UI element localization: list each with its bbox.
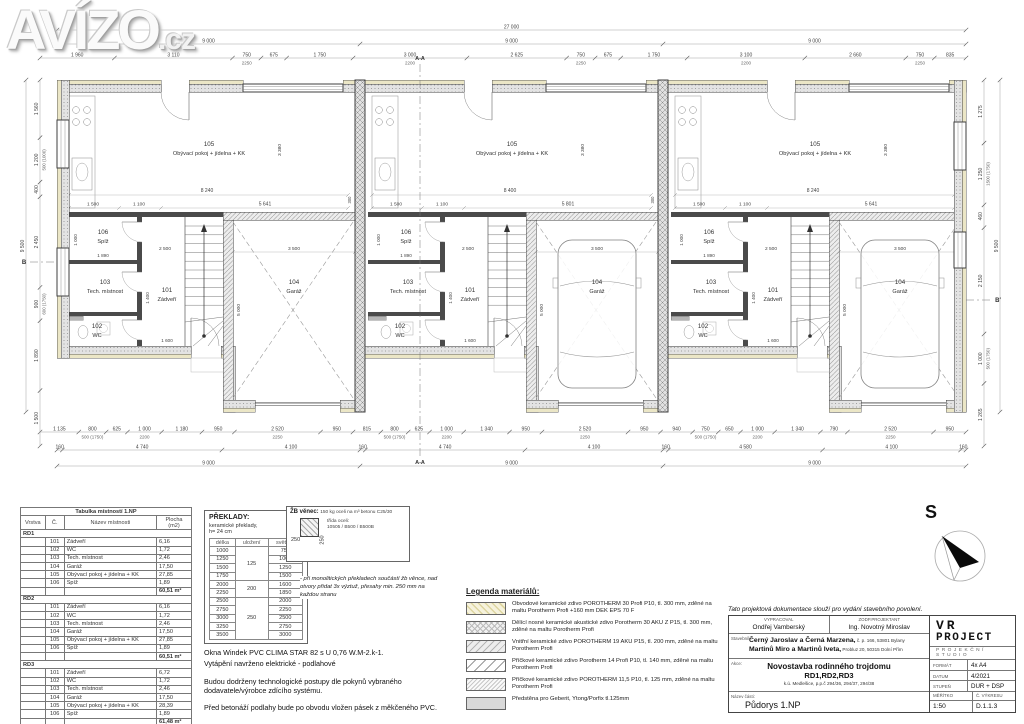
notes-block: Okna Windek PVC CLIMA STAR 82 s U 0,76 W… <box>204 648 466 721</box>
svg-text:500 (1750): 500 (1750) <box>986 348 991 370</box>
svg-text:900: 900 <box>34 300 40 309</box>
scale-number-row: MĚŘÍTKO 1:50 Č. VÝKRESU D.1.1.3 <box>930 692 1015 712</box>
table-row: 101Zádveří6,72 <box>21 669 192 677</box>
svg-text:2250: 2250 <box>580 434 591 439</box>
svg-text:106: 106 <box>704 229 715 236</box>
zodp-projektant-cell: ZODP.PROJEKTANT Ing. Novotný Miroslav <box>830 616 930 633</box>
svg-text:101: 101 <box>768 287 779 294</box>
svg-text:1 135: 1 135 <box>53 426 66 432</box>
svg-text:3 380: 3 380 <box>883 144 889 156</box>
svg-text:790: 790 <box>830 426 839 432</box>
stupen-label: STUPEŇ <box>930 681 968 691</box>
svg-text:9 500: 9 500 <box>20 240 26 253</box>
svg-text:1 600: 1 600 <box>464 338 476 343</box>
svg-text:9 000: 9 000 <box>808 38 821 44</box>
datum-row: DATUM 4/2021 <box>930 671 1015 682</box>
legend-text: Předstěna pro Geberit, Ytong/Porfix tl.1… <box>512 696 727 703</box>
legend-text: Dělící nosné keramické akustické zdivo P… <box>512 620 727 634</box>
cislo-value: D.1.1.3 <box>973 701 1015 710</box>
svg-text:S: S <box>925 502 937 522</box>
title-block: Tato projektová dokumentace slouží pro v… <box>728 606 1016 713</box>
svg-text:1 265: 1 265 <box>978 408 984 421</box>
venec-dim-a: 250 <box>291 537 300 543</box>
svg-text:105: 105 <box>507 141 518 148</box>
table-row: RD1 <box>21 530 192 538</box>
project-title-2: RD1,RD2,RD3 <box>729 671 929 680</box>
table-row: 103Tech. místnost2,46 <box>21 685 192 693</box>
logo-line-1: VR <box>936 619 1015 632</box>
svg-text:950: 950 <box>333 426 342 432</box>
venec-dim-b: 250 <box>320 535 326 544</box>
svg-text:9 000: 9 000 <box>505 460 518 466</box>
floor-plan-unit-rd1: 101Zádveří102WC103Tech. místnost104Garáž… <box>57 80 360 412</box>
logo-line-2: PROJECT <box>936 632 1015 644</box>
akce-label: Akce: <box>731 661 742 666</box>
svg-text:8 400: 8 400 <box>504 188 517 194</box>
svg-text:2 660: 2 660 <box>849 52 862 58</box>
svg-text:2250: 2250 <box>576 60 587 65</box>
svg-text:1 250: 1 250 <box>978 167 984 180</box>
svg-text:2 625: 2 625 <box>511 52 524 58</box>
svg-text:300: 300 <box>347 196 352 204</box>
svg-text:5 641: 5 641 <box>259 202 272 208</box>
svg-text:300: 300 <box>650 196 655 204</box>
floor-plan-unit-rd2: 101Zádveří102WC103Tech. místnost104Garáž… <box>360 80 663 412</box>
svg-text:5 641: 5 641 <box>865 202 878 208</box>
svg-text:1 100: 1 100 <box>739 202 751 208</box>
venec-note: - při monolitických překladech součástí … <box>300 576 440 599</box>
table-row: 61,48 m² <box>21 718 192 724</box>
svg-text:Obývací pokoj + jídelna + KK: Obývací pokoj + jídelna + KK <box>173 151 245 157</box>
svg-text:4 740: 4 740 <box>439 444 452 450</box>
svg-text:950: 950 <box>522 426 531 432</box>
note-pvc: Před betonáží podlahy bude po obvodu vlo… <box>204 703 466 712</box>
svg-text:835: 835 <box>946 52 955 58</box>
legend-swatch-porotherm-14-profi <box>466 659 506 672</box>
svg-text:101: 101 <box>465 287 476 294</box>
svg-text:950: 950 <box>214 426 223 432</box>
svg-text:650: 650 <box>725 426 734 432</box>
meritko-value: 1:50 <box>930 701 972 710</box>
svg-text:Obývací pokoj + jídelna + KK: Obývací pokoj + jídelna + KK <box>476 151 548 157</box>
table-row: 102WC1,72 <box>21 612 192 620</box>
table-row: 20002001600 <box>210 580 303 588</box>
svg-text:3 100: 3 100 <box>740 52 753 58</box>
svg-text:5 000: 5 000 <box>842 304 848 316</box>
svg-text:Spíž: Spíž <box>97 239 108 245</box>
svg-text:1 400: 1 400 <box>448 292 453 304</box>
svg-text:WC: WC <box>92 333 101 339</box>
zodp-name: Ing. Novotný Miroslav <box>830 624 930 631</box>
svg-text:1 275: 1 275 <box>978 105 984 118</box>
svg-text:9 000: 9 000 <box>505 38 518 44</box>
legend-item: Vnitřní keramické zdivo POROTHERM 19 AKU… <box>466 639 736 653</box>
table-row: 103Tech. místnost2,46 <box>21 554 192 562</box>
svg-text:9 000: 9 000 <box>808 460 821 466</box>
stavebnik-2-addr: Probluz 20, 50315 Dolní Přím <box>841 647 903 652</box>
note-technology: Budou dodrženy technologické postupy dle… <box>204 677 466 696</box>
svg-text:2250: 2250 <box>272 434 283 439</box>
svg-text:160: 160 <box>56 444 65 450</box>
svg-text:3 500: 3 500 <box>894 246 906 252</box>
svg-text:625: 625 <box>415 426 424 432</box>
legend-items: Obvodové keramické zdivo POROTHERM 30 Pr… <box>466 601 736 710</box>
stavebnik-cell: Stavebník: Černý Jaroslav a Černá Marzen… <box>729 634 929 659</box>
material-legend-block: Legenda materiálů: Obvodové keramické zd… <box>466 587 736 714</box>
svg-text:815: 815 <box>363 426 372 432</box>
svg-text:1 890: 1 890 <box>97 253 109 258</box>
svg-text:4 100: 4 100 <box>885 444 898 450</box>
stavebnik-1-addr: č. p. 166, 53801 Bylany <box>856 638 905 643</box>
legend-text: Vnitřní keramické zdivo POROTHERM 19 AKU… <box>512 639 727 653</box>
title-block-disclaimer: Tato projektová dokumentace slouží pro v… <box>728 606 1016 613</box>
legend-item: Obvodové keramické zdivo POROTHERM 30 Pr… <box>466 601 736 615</box>
venec-title: ŽB věnec: <box>290 509 319 515</box>
note-heating: Vytápění navrženo elektrické - podlahové <box>204 659 466 668</box>
note-windows: Okna Windek PVC CLIMA STAR 82 s U 0,76 W… <box>204 648 466 657</box>
table-row: 101Zádveří6,16 <box>21 538 192 546</box>
room-table-block: Tabulka místností 1.NPVrstvaČ.Název míst… <box>20 507 192 724</box>
svg-text:1 600: 1 600 <box>161 338 173 343</box>
floor-plan-unit-rd3: 101Zádveří102WC103Tech. místnost104Garáž… <box>663 80 966 412</box>
svg-text:1 600: 1 600 <box>767 338 779 343</box>
vypracoval-name: Ondřej Vamberský <box>729 624 829 631</box>
svg-text:1 000: 1 000 <box>978 352 984 365</box>
svg-text:8 240: 8 240 <box>201 188 214 194</box>
svg-text:105: 105 <box>810 141 821 148</box>
table-row: 103Tech. místnost2,46 <box>21 620 192 628</box>
svg-text:Spíž: Spíž <box>703 239 714 245</box>
svg-text:104: 104 <box>289 279 300 286</box>
svg-text:A-A: A-A <box>415 460 425 466</box>
akce-cell: Akce: Novostavba rodinného trojdomu RD1,… <box>729 659 929 692</box>
svg-text:750: 750 <box>701 426 710 432</box>
svg-text:2 520: 2 520 <box>271 426 284 432</box>
svg-text:1 400: 1 400 <box>145 292 150 304</box>
legend-item: Dělící nosné keramické akustické zdivo P… <box>466 620 736 634</box>
svg-text:104: 104 <box>592 279 603 286</box>
svg-text:1 890: 1 890 <box>703 253 715 258</box>
svg-text:4 100: 4 100 <box>285 444 298 450</box>
svg-text:B′: B′ <box>995 298 1001 304</box>
svg-text:103: 103 <box>100 279 111 286</box>
legend-item: Příčkové keramické zdivo POROTHERM 11,5 … <box>466 677 736 691</box>
svg-text:103: 103 <box>403 279 414 286</box>
svg-text:500 (1750): 500 (1750) <box>695 434 717 439</box>
svg-text:9 500: 9 500 <box>994 240 1000 253</box>
table-row: 60,51 m² <box>21 587 192 595</box>
format-row: FORMÁT 4x A4 <box>930 660 1015 671</box>
svg-text:1 400: 1 400 <box>751 292 756 304</box>
svg-text:800: 800 <box>88 426 97 432</box>
svg-text:Zádveří: Zádveří <box>158 297 177 303</box>
svg-text:Tech. místnost: Tech. místnost <box>87 289 124 295</box>
svg-text:101: 101 <box>162 287 173 294</box>
table-row: 105Obývací pokoj + jídelna + KK28,39 <box>21 702 192 710</box>
svg-text:1 200: 1 200 <box>34 153 40 166</box>
svg-text:2250: 2250 <box>242 60 253 65</box>
svg-text:2 500: 2 500 <box>765 246 777 252</box>
legend-text: Příčkové keramické zdivo POROTHERM 11,5 … <box>512 677 727 691</box>
table-row: RD3 <box>21 661 192 669</box>
watermark-suffix: .cz <box>158 23 195 56</box>
svg-text:4 740: 4 740 <box>136 444 149 450</box>
legend-title: Legenda materiálů: <box>466 587 736 596</box>
svg-text:1 750: 1 750 <box>314 52 327 58</box>
floor-plan: 101Zádveří102WC103Tech. místnost104Garáž… <box>0 0 1024 500</box>
north-compass: S <box>915 498 1005 598</box>
svg-text:103: 103 <box>706 279 717 286</box>
project-cadastre: k.ú. Medlešice, p.p.č 294/36, 294/37, 29… <box>729 681 929 686</box>
datum-value: 4/2021 <box>968 671 1015 681</box>
svg-text:400: 400 <box>34 185 40 194</box>
vypracoval-cell: VYPRACOVAL Ondřej Vamberský <box>729 616 830 633</box>
legend-text: Příčkové keramické zdivo Porotherm 14 Pr… <box>512 658 727 672</box>
svg-text:Obývací pokoj + jídelna + KK: Obývací pokoj + jídelna + KK <box>779 151 851 157</box>
svg-text:750: 750 <box>916 52 925 58</box>
svg-text:9 000: 9 000 <box>202 38 215 44</box>
meritko-label: MĚŘÍTKO <box>930 692 972 701</box>
svg-text:2200: 2200 <box>140 434 151 439</box>
stavebnik-label: Stavebník: <box>731 636 752 641</box>
table-row: 102WC1,72 <box>21 546 192 554</box>
svg-text:2 500: 2 500 <box>462 246 474 252</box>
stavebnik-2: Martinů Miro a Martinů Iveta, <box>749 646 841 653</box>
nazev-label: Název části: <box>731 694 755 699</box>
drawing-name: Půdorys 1.NP <box>745 700 927 710</box>
svg-text:1500 (1750): 1500 (1750) <box>986 162 991 186</box>
svg-text:625: 625 <box>113 426 122 432</box>
svg-text:9 000: 9 000 <box>202 460 215 466</box>
svg-text:106: 106 <box>401 229 412 236</box>
svg-text:3 500: 3 500 <box>288 246 300 252</box>
table-row: Tabulka místností 1.NP <box>21 508 192 516</box>
table-row: 104Garáž17,50 <box>21 628 192 636</box>
studio-caption-2: STUDIO <box>936 653 1015 658</box>
svg-text:950: 950 <box>640 426 649 432</box>
svg-text:5 000: 5 000 <box>539 304 545 316</box>
svg-text:4 580: 4 580 <box>739 444 752 450</box>
svg-text:1 100: 1 100 <box>133 202 145 208</box>
svg-text:A-A: A-A <box>415 56 425 62</box>
stupen-value: DUR + DSP <box>968 681 1015 691</box>
svg-text:B: B <box>22 260 27 266</box>
svg-text:27 000: 27 000 <box>504 24 520 30</box>
svg-text:1 180: 1 180 <box>176 426 189 432</box>
svg-text:Garáž: Garáž <box>286 289 301 295</box>
table-row: 101Zádveří6,16 <box>21 603 192 611</box>
svg-text:1 340: 1 340 <box>791 426 804 432</box>
svg-text:1 000: 1 000 <box>376 234 381 246</box>
venec-spec: 150 kg oceli na m³ betonu C25/30 <box>320 510 392 515</box>
legend-swatch-porotherm-30-profi <box>466 602 506 615</box>
watermark-text: AVÍZO <box>6 0 158 61</box>
drawing-name-cell: Název části: Půdorys 1.NP <box>729 692 929 712</box>
legend-text: Obvodové keramické zdivo POROTHERM 30 Pr… <box>512 601 727 615</box>
legend-swatch-predstena <box>466 697 506 710</box>
svg-text:5 000: 5 000 <box>236 304 242 316</box>
cislo-label: Č. VÝKRESU <box>973 692 1015 701</box>
legend-swatch-porotherm-30-aku-z <box>466 621 506 634</box>
svg-text:1 560: 1 560 <box>34 102 40 115</box>
svg-text:500 (1750): 500 (1750) <box>384 434 406 439</box>
avizo-watermark-logo: AVÍZO.cz <box>6 2 195 58</box>
table-row: 105Obývací pokoj + jídelna + KK27,85 <box>21 636 192 644</box>
svg-text:Zádveří: Zádveří <box>764 297 783 303</box>
svg-text:800: 800 <box>390 426 399 432</box>
svg-text:1 890: 1 890 <box>34 349 40 362</box>
studio-caption: PROJEKČNÍ STUDIO <box>930 647 1015 660</box>
svg-text:160: 160 <box>359 444 368 450</box>
table-row: 104Garáž17,50 <box>21 562 192 570</box>
svg-text:2 500: 2 500 <box>159 246 171 252</box>
table-row: 60,51 m² <box>21 653 192 661</box>
svg-text:4 100: 4 100 <box>588 444 601 450</box>
table-row: RD2 <box>21 595 192 603</box>
svg-text:2 520: 2 520 <box>579 426 592 432</box>
svg-text:105: 105 <box>204 141 215 148</box>
svg-text:1 100: 1 100 <box>436 202 448 208</box>
drawing-sheet: 101Zádveří102WC103Tech. místnost104Garáž… <box>0 0 1024 724</box>
room-table: Tabulka místností 1.NPVrstvaČ.Název míst… <box>20 507 192 724</box>
svg-text:675: 675 <box>604 52 613 58</box>
svg-text:2 520: 2 520 <box>884 426 897 432</box>
svg-text:1 000: 1 000 <box>751 426 764 432</box>
svg-text:675: 675 <box>270 52 279 58</box>
table-row: 102WC1,72 <box>21 677 192 685</box>
svg-text:Garáž: Garáž <box>589 289 604 295</box>
svg-text:1 500: 1 500 <box>390 202 402 208</box>
svg-text:3 500: 3 500 <box>591 246 603 252</box>
svg-text:1 750: 1 750 <box>648 52 661 58</box>
table-row: 106Spíž1,89 <box>21 644 192 652</box>
svg-text:940: 940 <box>672 426 681 432</box>
legend-item: Příčkové keramické zdivo Porotherm 14 Pr… <box>466 658 736 672</box>
svg-text:Tech. místnost: Tech. místnost <box>390 289 427 295</box>
table-row: 105Obývací pokoj + jídelna + KK27,85 <box>21 571 192 579</box>
svg-text:1 000: 1 000 <box>440 426 453 432</box>
svg-text:Tech. místnost: Tech. místnost <box>693 289 730 295</box>
table-row: 106Spíž1,89 <box>21 579 192 587</box>
svg-text:600 (1750): 600 (1750) <box>42 293 47 315</box>
svg-text:750: 750 <box>577 52 586 58</box>
svg-text:1 500: 1 500 <box>34 412 40 425</box>
svg-text:160: 160 <box>662 444 671 450</box>
stavebnik-1: Černý Jaroslav a Černá Marzena, <box>749 637 856 644</box>
svg-text:1 340: 1 340 <box>480 426 493 432</box>
table-row: VrstvaČ.Název místnostiPlocha (m2) <box>21 516 192 530</box>
datum-label: DATUM <box>930 671 968 681</box>
svg-text:1 000: 1 000 <box>679 234 684 246</box>
svg-text:104: 104 <box>895 279 906 286</box>
svg-text:102: 102 <box>395 323 406 330</box>
legend-swatch-porotherm-19-aku <box>466 640 506 653</box>
svg-text:WC: WC <box>698 333 707 339</box>
venec-detail-block: ŽB věnec: 150 kg oceli na m³ betonu C25/… <box>286 506 410 562</box>
svg-text:2200: 2200 <box>753 434 764 439</box>
svg-text:WC: WC <box>395 333 404 339</box>
svg-text:1 500: 1 500 <box>87 202 99 208</box>
format-label: FORMÁT <box>930 660 968 670</box>
svg-text:106: 106 <box>98 229 109 236</box>
svg-text:2 450: 2 450 <box>34 236 40 249</box>
svg-text:750: 750 <box>243 52 252 58</box>
svg-text:102: 102 <box>698 323 709 330</box>
svg-text:1 500: 1 500 <box>693 202 705 208</box>
table-row: 106Spíž1,89 <box>21 710 192 718</box>
svg-text:102: 102 <box>92 323 103 330</box>
venec-steel-classes: 10505 / B500 / B500B <box>327 525 374 531</box>
svg-text:160: 160 <box>959 444 968 450</box>
svg-text:2250: 2250 <box>915 60 926 65</box>
legend-swatch-porotherm-11-5 <box>466 678 506 691</box>
stupen-row: STUPEŇ DUR + DSP <box>930 681 1015 692</box>
svg-text:3 380: 3 380 <box>580 144 586 156</box>
table-row: 25002502000 <box>210 597 303 605</box>
legend-item: Předstěna pro Geberit, Ytong/Porfix tl.1… <box>466 696 736 710</box>
project-title: Novostavba rodinného trojdomu <box>729 662 929 671</box>
format-value: 4x A4 <box>968 660 1015 670</box>
vypracoval-label: VYPRACOVAL <box>729 617 829 622</box>
svg-text:2200: 2200 <box>741 60 752 65</box>
svg-text:Garáž: Garáž <box>892 289 907 295</box>
svg-text:2250: 2250 <box>885 434 896 439</box>
svg-text:460: 460 <box>978 212 984 221</box>
svg-text:5 801: 5 801 <box>562 202 575 208</box>
svg-text:500 (1000): 500 (1000) <box>42 149 47 171</box>
svg-text:1 890: 1 890 <box>400 253 412 258</box>
svg-text:2200: 2200 <box>442 434 453 439</box>
svg-text:1 000: 1 000 <box>73 234 78 246</box>
svg-text:Zádveří: Zádveří <box>461 297 480 303</box>
zodp-label: ZODP.PROJEKTANT <box>830 617 930 622</box>
svg-text:2200: 2200 <box>405 60 416 65</box>
svg-text:8 240: 8 240 <box>807 188 820 194</box>
svg-text:3 380: 3 380 <box>277 144 283 156</box>
svg-text:2 150: 2 150 <box>978 274 984 287</box>
vr-project-logo: VR PROJECT <box>930 616 1015 647</box>
svg-text:Spíž: Spíž <box>400 239 411 245</box>
svg-text:500 (1750): 500 (1750) <box>82 434 104 439</box>
venec-section-square <box>300 518 319 537</box>
table-row: 104Garáž17,50 <box>21 693 192 701</box>
svg-text:1 000: 1 000 <box>138 426 151 432</box>
svg-text:950: 950 <box>946 426 955 432</box>
